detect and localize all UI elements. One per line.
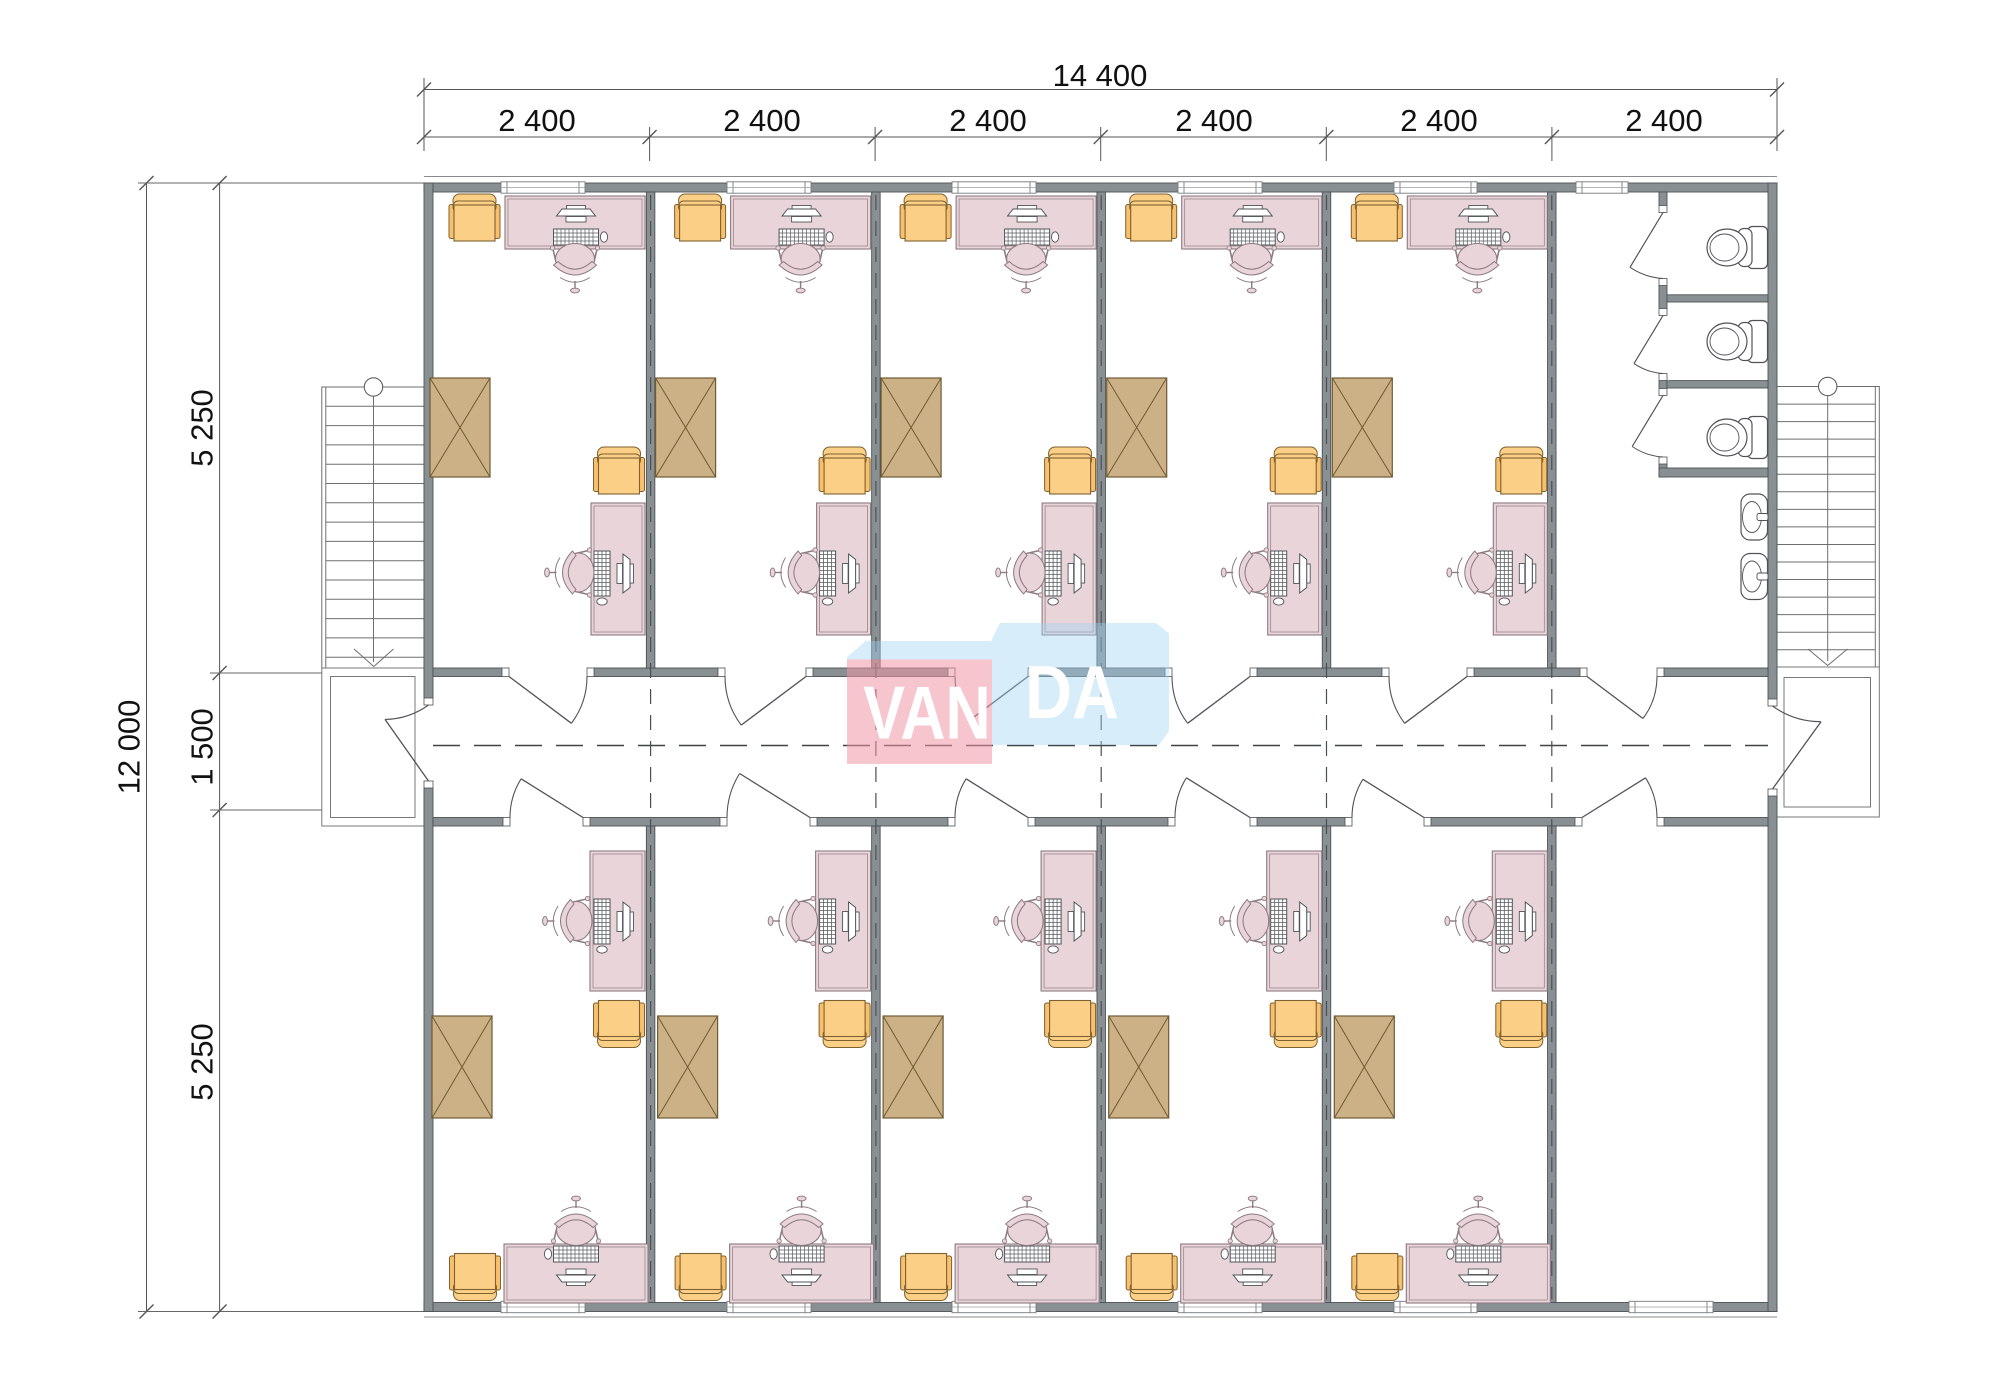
svg-text:2 400: 2 400 [723, 103, 801, 138]
svg-text:5 250: 5 250 [185, 1023, 220, 1101]
svg-text:VAN: VAN [863, 671, 991, 755]
svg-text:DA: DA [1025, 650, 1119, 734]
svg-text:2 400: 2 400 [1400, 103, 1478, 138]
svg-text:2 400: 2 400 [1625, 103, 1703, 138]
svg-text:5 250: 5 250 [185, 389, 220, 467]
svg-text:1 500: 1 500 [185, 708, 220, 786]
svg-text:14 400: 14 400 [1053, 58, 1148, 93]
svg-text:2 400: 2 400 [498, 103, 576, 138]
svg-text:2 400: 2 400 [949, 103, 1027, 138]
svg-text:12 000: 12 000 [112, 700, 147, 795]
svg-text:2 400: 2 400 [1175, 103, 1253, 138]
